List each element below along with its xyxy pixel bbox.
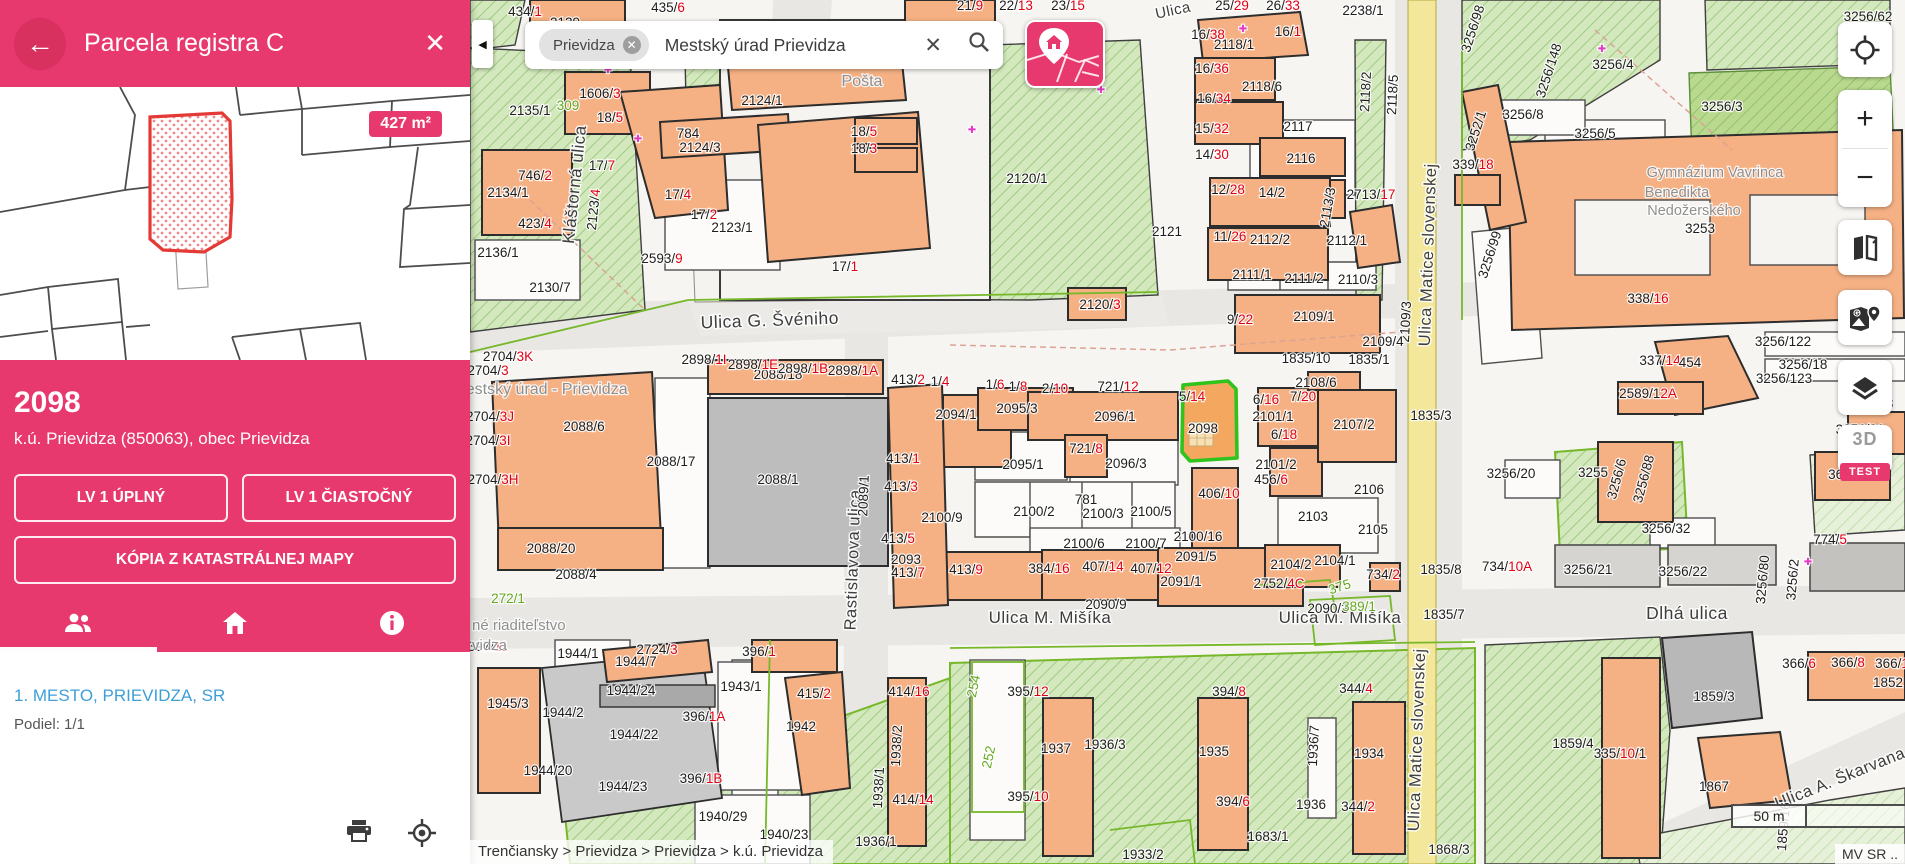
svg-text:1936: 1936 xyxy=(1296,797,1326,812)
svg-text:2101/1: 2101/1 xyxy=(1252,409,1293,424)
svg-text:1835/7: 1835/7 xyxy=(1423,607,1464,622)
svg-text:vidza: vidza xyxy=(472,637,508,654)
svg-text:Nedožerského: Nedožerského xyxy=(1647,203,1741,219)
chevron-left-icon: ◀ xyxy=(478,38,486,51)
map-viewport[interactable]: 434/12129435/6436/102135/13091606/318/57… xyxy=(470,0,1905,864)
svg-text:2898/1B: 2898/1B xyxy=(778,361,828,376)
svg-text:2109/4: 2109/4 xyxy=(1362,334,1404,349)
svg-text:né riaditeľstvo: né riaditeľstvo xyxy=(472,617,566,634)
zoom-in-button[interactable]: + xyxy=(1838,90,1892,148)
svg-text:454: 454 xyxy=(1679,355,1702,370)
svg-text:7/20: 7/20 xyxy=(1290,389,1316,404)
svg-text:456/6: 456/6 xyxy=(1254,472,1288,487)
zoom-out-button[interactable]: − xyxy=(1838,149,1892,207)
svg-text:1944/22: 1944/22 xyxy=(610,727,659,742)
svg-text:2100/3: 2100/3 xyxy=(1082,506,1123,521)
scale-label: 50 m xyxy=(1733,806,1807,826)
svg-text:16/34: 16/34 xyxy=(1197,91,1231,106)
detail-tabs xyxy=(0,594,470,652)
svg-text:366/1: 366/1 xyxy=(1875,656,1905,671)
panel-header: ← Parcela registra C ✕ xyxy=(0,0,470,87)
svg-text:309: 309 xyxy=(557,98,580,113)
lv-full-button[interactable]: LV 1 ÚPLNÝ xyxy=(14,474,228,522)
cadastral-map-copy-button[interactable]: KÓPIA Z KATASTRÁLNEJ MAPY xyxy=(14,536,456,584)
svg-text:3256/4: 3256/4 xyxy=(1592,57,1634,72)
svg-text:435/6: 435/6 xyxy=(651,0,685,15)
svg-text:396/1B: 396/1B xyxy=(680,771,723,786)
svg-text:344/4: 344/4 xyxy=(1339,681,1373,696)
svg-text:G: G xyxy=(1854,310,1860,317)
svg-text:Benedikta: Benedikta xyxy=(1645,185,1710,201)
svg-text:1944/20: 1944/20 xyxy=(524,763,573,778)
svg-text:413/2: 413/2 xyxy=(891,372,925,387)
clear-search-button[interactable]: ✕ xyxy=(924,33,942,58)
svg-text:1936/3: 1936/3 xyxy=(1084,737,1125,752)
svg-text:1937: 1937 xyxy=(1041,741,1071,756)
svg-text:1942: 1942 xyxy=(786,719,816,734)
svg-text:2123/1: 2123/1 xyxy=(711,220,752,235)
svg-text:774/5: 774/5 xyxy=(1813,532,1847,547)
panel-title: Parcela registra C xyxy=(84,29,424,58)
svg-text:3253: 3253 xyxy=(1685,221,1715,236)
svg-text:1944/24: 1944/24 xyxy=(607,683,656,698)
svg-text:389/1: 389/1 xyxy=(1342,599,1376,614)
street-imagery-button[interactable]: G xyxy=(1838,290,1892,345)
svg-text:3256/21: 3256/21 xyxy=(1564,562,1613,577)
print-icon xyxy=(346,819,372,843)
svg-text:721/8: 721/8 xyxy=(1069,441,1103,456)
svg-text:2088/1: 2088/1 xyxy=(757,472,798,487)
svg-text:2110/3: 2110/3 xyxy=(1338,272,1378,287)
svg-text:2095/1: 2095/1 xyxy=(1002,457,1043,472)
parcel-number: 2098 xyxy=(14,360,456,420)
svg-text:2593/9: 2593/9 xyxy=(641,251,682,266)
svg-text:734/10A: 734/10A xyxy=(1482,559,1532,574)
svg-text:2117: 2117 xyxy=(1283,119,1312,134)
svg-text:2103: 2103 xyxy=(1298,509,1328,524)
svg-text:2/10: 2/10 xyxy=(1042,381,1068,396)
svg-text:721/12: 721/12 xyxy=(1097,379,1138,394)
svg-text:2704/3: 2704/3 xyxy=(470,363,509,378)
chip-label: Prievidza xyxy=(553,37,615,54)
svg-text:413/9: 413/9 xyxy=(949,562,983,577)
svg-text:2108/6: 2108/6 xyxy=(1295,375,1336,390)
svg-text:2100/9: 2100/9 xyxy=(921,510,962,525)
tab-info[interactable] xyxy=(313,594,470,652)
svg-text:17/4: 17/4 xyxy=(665,187,692,202)
svg-text:413/1: 413/1 xyxy=(886,451,920,466)
svg-text:1852: 1852 xyxy=(1873,675,1903,690)
svg-text:2105: 2105 xyxy=(1358,522,1388,537)
svg-text:16/36: 16/36 xyxy=(1195,61,1229,76)
gps-locate-button[interactable] xyxy=(1838,22,1892,77)
svg-text:2118/1: 2118/1 xyxy=(1214,37,1254,52)
svg-text:17/1: 17/1 xyxy=(832,259,858,274)
svg-text:2118/6: 2118/6 xyxy=(1242,79,1282,94)
svg-text:1859/3: 1859/3 xyxy=(1693,689,1734,704)
parcel-subtitle: k.ú. Prievidza (850063), obec Prievidza xyxy=(14,429,456,449)
tab-buildings[interactable] xyxy=(157,594,314,652)
svg-text:3256/18: 3256/18 xyxy=(1779,357,1828,372)
svg-text:746/2: 746/2 xyxy=(518,168,552,183)
threed-label: 3D xyxy=(1838,429,1892,450)
svg-text:11/26: 11/26 xyxy=(1214,229,1247,244)
svg-text:1940/29: 1940/29 xyxy=(699,809,748,824)
svg-text:3255: 3255 xyxy=(1578,465,1608,480)
svg-text:2100/2: 2100/2 xyxy=(1013,504,1054,519)
close-icon: ✕ xyxy=(424,28,446,58)
svg-text:9/22: 9/22 xyxy=(1227,312,1253,327)
map-attribution: MV SR .. xyxy=(1835,844,1905,864)
svg-text:734/2: 734/2 xyxy=(1366,567,1400,582)
svg-text:2088/6: 2088/6 xyxy=(563,419,604,434)
svg-text:1938/2: 1938/2 xyxy=(888,725,905,767)
svg-text:2107/2: 2107/2 xyxy=(1333,417,1374,432)
home-icon xyxy=(222,611,248,635)
svg-text:2704/3I: 2704/3I xyxy=(470,433,511,448)
svg-text:1835/8: 1835/8 xyxy=(1420,562,1461,577)
svg-text:2134/1: 2134/1 xyxy=(487,185,528,200)
svg-text:2090/9: 2090/9 xyxy=(1085,597,1126,612)
svg-text:413/3: 413/3 xyxy=(884,479,918,494)
svg-text:1859/4: 1859/4 xyxy=(1552,736,1594,751)
svg-text:1936/7: 1936/7 xyxy=(1305,725,1322,767)
collapse-sidebar-button[interactable]: ◀ xyxy=(472,20,493,68)
scale-bar: 50 m xyxy=(1731,804,1905,828)
svg-text:26/33: 26/33 xyxy=(1266,0,1300,13)
svg-text:396/1A: 396/1A xyxy=(683,709,726,724)
back-button[interactable]: ← xyxy=(14,18,66,70)
svg-text:2106: 2106 xyxy=(1354,482,1384,497)
svg-text:1933/2: 1933/2 xyxy=(1122,847,1163,862)
svg-text:1944/1: 1944/1 xyxy=(557,646,598,661)
svg-text:1938/1: 1938/1 xyxy=(870,767,887,809)
svg-text:3256/22: 3256/22 xyxy=(1659,564,1708,579)
svg-text:Gymnázium Vavrinca: Gymnázium Vavrinca xyxy=(1647,165,1785,181)
svg-text:413/7: 413/7 xyxy=(891,565,925,580)
svg-text:17/7: 17/7 xyxy=(589,158,615,173)
svg-text:2098: 2098 xyxy=(1188,421,1218,436)
svg-text:✚: ✚ xyxy=(634,134,642,145)
svg-text:2124/3: 2124/3 xyxy=(679,140,720,155)
svg-text:2713/17: 2713/17 xyxy=(1347,187,1396,202)
search-input[interactable] xyxy=(663,34,912,57)
test-badge: TEST xyxy=(1840,463,1890,481)
search-button[interactable] xyxy=(968,31,990,59)
svg-text:2118/5: 2118/5 xyxy=(1384,74,1401,115)
svg-text:2095/3: 2095/3 xyxy=(996,401,1037,416)
svg-text:25/29: 25/29 xyxy=(1215,0,1249,13)
threed-mode-button[interactable]: 3D TEST xyxy=(1838,425,1892,473)
split-view-icon xyxy=(1851,235,1879,261)
panel-footer xyxy=(0,819,470,852)
svg-text:3256/5: 3256/5 xyxy=(1574,126,1615,141)
search-icon xyxy=(968,31,990,53)
svg-text:2091/1: 2091/1 xyxy=(1160,574,1201,589)
svg-text:2116: 2116 xyxy=(1286,151,1315,166)
parcel-preview-map: 427 m² xyxy=(0,87,470,360)
svg-text:2100/6: 2100/6 xyxy=(1063,536,1104,551)
svg-text:Mestský úrad - Prievidza: Mestský úrad - Prievidza xyxy=(470,381,628,398)
svg-text:414/16: 414/16 xyxy=(888,684,929,699)
svg-text:1934: 1934 xyxy=(1354,746,1385,761)
svg-text:366/8: 366/8 xyxy=(1831,655,1865,670)
breadcrumb: Trenčiansky > Prievidza > Prievidza > k.… xyxy=(470,840,833,864)
map-canvas[interactable]: 434/12129435/6436/102135/13091606/318/57… xyxy=(470,0,1905,864)
svg-text:384/16: 384/16 xyxy=(1028,561,1069,576)
svg-text:2109/1: 2109/1 xyxy=(1293,309,1334,324)
svg-text:1835/3: 1835/3 xyxy=(1410,408,1451,423)
parcel-info-section: 2098 k.ú. Prievidza (850063), obec Priev… xyxy=(0,360,470,652)
svg-text:434/1: 434/1 xyxy=(508,4,542,19)
svg-text:423/4: 423/4 xyxy=(518,216,552,231)
svg-text:1936/1: 1936/1 xyxy=(855,834,896,849)
svg-text:1/8: 1/8 xyxy=(1009,379,1028,394)
svg-text:Dlhá ulica: Dlhá ulica xyxy=(1646,603,1728,623)
svg-text:2589/12A: 2589/12A xyxy=(1619,386,1677,401)
svg-text:3256/8: 3256/8 xyxy=(1502,107,1543,122)
svg-text:2120/3: 2120/3 xyxy=(1079,297,1120,312)
search-filter-chip[interactable]: Prievidza ✕ xyxy=(539,29,649,61)
svg-text:2118/2: 2118/2 xyxy=(1357,71,1374,112)
svg-text:3256/123: 3256/123 xyxy=(1756,371,1812,386)
svg-text:2111/2: 2111/2 xyxy=(1284,271,1323,286)
svg-text:407/14: 407/14 xyxy=(1082,559,1124,574)
svg-text:1944/23: 1944/23 xyxy=(599,779,648,794)
location-searching-icon xyxy=(1850,35,1880,65)
search-bar[interactable]: Prievidza ✕ ✕ xyxy=(525,21,1003,69)
svg-text:407/12: 407/12 xyxy=(1130,561,1171,576)
svg-text:✚: ✚ xyxy=(1598,44,1606,55)
arrow-left-icon: ← xyxy=(26,28,54,60)
svg-text:2101/2: 2101/2 xyxy=(1255,457,1296,472)
svg-text:414/14: 414/14 xyxy=(892,792,934,807)
people-icon xyxy=(63,612,93,634)
svg-text:2096/1: 2096/1 xyxy=(1094,409,1135,424)
svg-text:6/18: 6/18 xyxy=(1271,427,1297,442)
svg-text:16/1: 16/1 xyxy=(1275,24,1301,39)
svg-text:2088/20: 2088/20 xyxy=(527,541,576,556)
owner-link[interactable]: 1. MESTO, PRIEVIDZA, SR xyxy=(14,686,456,706)
svg-text:18/5: 18/5 xyxy=(597,110,623,125)
svg-text:406/10: 406/10 xyxy=(1198,486,1239,501)
svg-text:1868/3: 1868/3 xyxy=(1428,842,1469,857)
parcel-detail-panel: ← Parcela registra C ✕ xyxy=(0,0,470,864)
active-tab-indicator xyxy=(0,647,157,652)
svg-text:2100/5: 2100/5 xyxy=(1130,504,1171,519)
svg-text:2111/1: 2111/1 xyxy=(1232,267,1271,282)
svg-text:2104/1: 2104/1 xyxy=(1314,553,1355,568)
streetview-map-pin-icon: G xyxy=(1849,304,1881,332)
owner-share: Podiel: 1/1 xyxy=(14,716,456,733)
svg-text:3256/20: 3256/20 xyxy=(1487,466,1536,481)
owners-list: 1. MESTO, PRIEVIDZA, SR Podiel: 1/1 xyxy=(0,652,470,733)
svg-text:394/6: 394/6 xyxy=(1216,794,1250,809)
svg-text:2121: 2121 xyxy=(1152,224,1182,239)
svg-text:2091/5: 2091/5 xyxy=(1175,549,1216,564)
svg-text:2135/1: 2135/1 xyxy=(509,103,550,118)
svg-text:1943/1: 1943/1 xyxy=(720,679,761,694)
svg-text:18/3: 18/3 xyxy=(851,141,877,156)
svg-text:1867: 1867 xyxy=(1699,779,1729,794)
svg-text:339/18: 339/18 xyxy=(1452,157,1493,172)
svg-text:2112/2: 2112/2 xyxy=(1250,232,1290,247)
svg-text:✚: ✚ xyxy=(1239,24,1247,35)
zoom-controls: + − xyxy=(1838,90,1892,207)
svg-text:2724/3: 2724/3 xyxy=(636,642,677,657)
svg-text:2100/7: 2100/7 xyxy=(1125,536,1166,551)
svg-text:2898/1I: 2898/1I xyxy=(681,352,726,367)
svg-text:22/13: 22/13 xyxy=(999,0,1033,13)
svg-text:2088/17: 2088/17 xyxy=(647,454,696,469)
svg-text:15/32: 15/32 xyxy=(1195,121,1229,136)
svg-text:2096/3: 2096/3 xyxy=(1105,456,1146,471)
layers-icon xyxy=(1851,375,1879,401)
svg-text:1/6: 1/6 xyxy=(986,377,1005,392)
svg-text:2704/3J: 2704/3J xyxy=(470,409,514,424)
svg-text:23/15: 23/15 xyxy=(1051,0,1085,13)
svg-text:2130/7: 2130/7 xyxy=(529,280,570,295)
svg-text:2898/1A: 2898/1A xyxy=(828,363,878,378)
svg-text:2238/1: 2238/1 xyxy=(1342,3,1383,18)
svg-text:2124/1: 2124/1 xyxy=(741,93,782,108)
svg-text:✚: ✚ xyxy=(1804,557,1812,568)
svg-text:2100/16: 2100/16 xyxy=(1174,529,1223,544)
svg-text:2752/4C: 2752/4C xyxy=(1253,576,1304,591)
svg-text:781: 781 xyxy=(1075,492,1098,507)
svg-text:413/5: 413/5 xyxy=(881,531,915,546)
svg-text:415/2: 415/2 xyxy=(797,686,831,701)
svg-text:272/1: 272/1 xyxy=(491,591,525,606)
lv-partial-button[interactable]: LV 1 ČIASTOČNÝ xyxy=(242,474,456,522)
chip-remove-icon[interactable]: ✕ xyxy=(623,36,641,54)
svg-text:395/12: 395/12 xyxy=(1007,684,1048,699)
svg-text:366/6: 366/6 xyxy=(1782,656,1816,671)
svg-text:1935: 1935 xyxy=(1199,744,1229,759)
locate-parcel-button[interactable] xyxy=(408,819,436,852)
svg-text:2136/1: 2136/1 xyxy=(477,245,518,260)
info-icon xyxy=(379,610,405,636)
svg-text:1/4: 1/4 xyxy=(931,374,950,389)
svg-text:3256/3: 3256/3 xyxy=(1701,99,1742,114)
close-button[interactable]: ✕ xyxy=(424,28,446,59)
svg-text:337/14: 337/14 xyxy=(1639,353,1681,368)
svg-text:784: 784 xyxy=(677,126,700,141)
svg-text:2089/1: 2089/1 xyxy=(855,475,871,517)
svg-text:✚: ✚ xyxy=(968,125,976,136)
svg-text:2120/1: 2120/1 xyxy=(1006,171,1047,186)
svg-text:1944/2: 1944/2 xyxy=(542,705,583,720)
svg-text:12/28: 12/28 xyxy=(1211,182,1245,197)
svg-text:Pošta: Pošta xyxy=(842,73,883,90)
svg-text:2094/1: 2094/1 xyxy=(935,407,976,422)
svg-text:394/8: 394/8 xyxy=(1212,684,1246,699)
svg-text:1945/3: 1945/3 xyxy=(487,696,528,711)
svg-text:1835/1: 1835/1 xyxy=(1348,352,1389,367)
svg-text:21/9: 21/9 xyxy=(957,0,983,13)
svg-text:2898/1E: 2898/1E xyxy=(728,357,778,372)
svg-text:14/2: 14/2 xyxy=(1259,185,1285,200)
svg-text:6/16: 6/16 xyxy=(1253,392,1279,407)
svg-text:14/30: 14/30 xyxy=(1195,147,1229,162)
area-badge: 427 m² xyxy=(369,111,442,137)
minimap-icon xyxy=(1027,22,1099,82)
svg-text:2704/3H: 2704/3H xyxy=(470,472,519,487)
compare-maps-button[interactable] xyxy=(1838,220,1892,275)
svg-text:3256/122: 3256/122 xyxy=(1755,334,1811,349)
svg-text:3256/32: 3256/32 xyxy=(1642,521,1691,536)
svg-text:395/10: 395/10 xyxy=(1007,789,1048,804)
svg-text:18/5: 18/5 xyxy=(851,124,877,139)
minimap-toggle-button[interactable] xyxy=(1025,20,1105,88)
tab-owners[interactable] xyxy=(0,594,157,652)
layers-button[interactable] xyxy=(1838,360,1892,415)
app-window: ← Parcela registra C ✕ xyxy=(0,0,1905,864)
print-button[interactable] xyxy=(346,819,372,852)
svg-text:2104/2: 2104/2 xyxy=(1270,557,1311,572)
svg-text:396/1: 396/1 xyxy=(742,644,776,659)
svg-text:1683/1: 1683/1 xyxy=(1247,829,1288,844)
svg-text:1606/3: 1606/3 xyxy=(579,86,620,101)
svg-text:2704/3K: 2704/3K xyxy=(483,349,533,364)
crosshair-icon xyxy=(408,819,436,847)
svg-text:5/14: 5/14 xyxy=(1179,389,1206,404)
svg-text:1835/10: 1835/10 xyxy=(1282,351,1331,366)
preview-selected-parcel xyxy=(150,113,232,252)
svg-text:2088/4: 2088/4 xyxy=(555,567,597,582)
svg-text:2112/1: 2112/1 xyxy=(1327,233,1367,248)
svg-text:338/16: 338/16 xyxy=(1627,291,1668,306)
svg-text:344/2: 344/2 xyxy=(1341,799,1375,814)
svg-text:335/10/1: 335/10/1 xyxy=(1594,746,1647,761)
